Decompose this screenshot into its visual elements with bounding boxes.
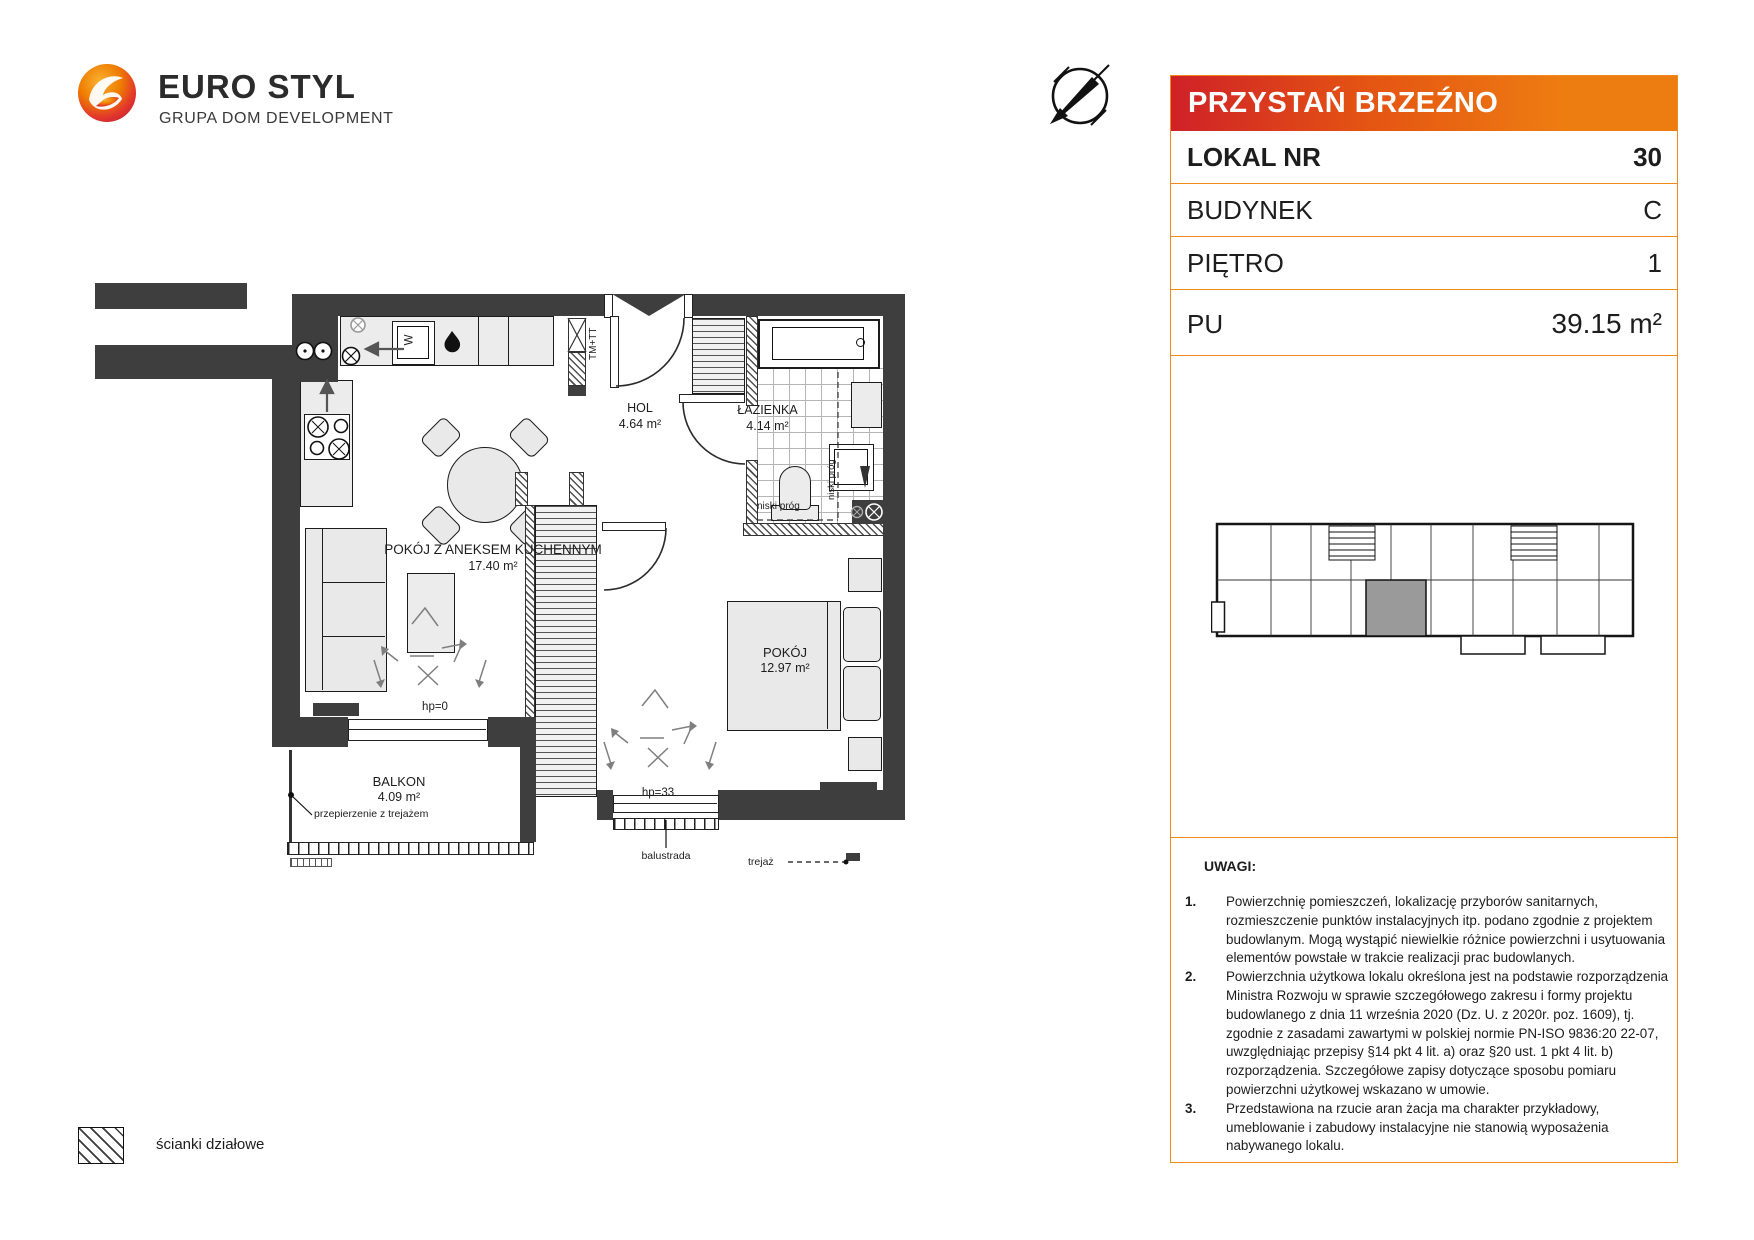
trellis-anchor (846, 853, 860, 861)
table-row-pu: PU 39.15 m² (1171, 289, 1677, 358)
note-item-2: 2. Powierzchnia użytkowa lokalu określon… (1171, 968, 1677, 1100)
room-label-hall: HOL 4.64 m² (600, 401, 680, 432)
floor-plan-card: { "logo": { "name": "EURO STYL", "taglin… (0, 0, 1754, 1240)
project-title: PRZYSTAŃ BRZEŹNO (1188, 87, 1498, 120)
annotation-trellis: trejaż (748, 856, 774, 868)
wall (883, 316, 905, 820)
radiator (313, 703, 359, 716)
hall-closet (692, 318, 745, 394)
room-name: ŁAZIENKA (715, 403, 820, 419)
logo-name: EURO STYL (158, 68, 356, 106)
note-item-1: 1. Powierzchnię pomieszczeń, lokalizację… (1171, 893, 1677, 968)
partition-wall (743, 523, 890, 536)
dining-table (447, 447, 523, 523)
counter-divider (478, 316, 479, 366)
note-number: 2. (1185, 968, 1196, 987)
partition-wall (569, 472, 584, 506)
shaft-block (852, 500, 890, 524)
room-name: POKÓJ Z ANEKSEM KUCHENNYM (368, 542, 618, 559)
room-area: 17.40 m² (368, 559, 618, 575)
annotation-hp33: hp=33 (628, 787, 688, 799)
entrance-marker (612, 294, 686, 316)
annotation-partition-trellis: przepierzenie z trejażem (314, 808, 428, 820)
note-number: 3. (1185, 1100, 1196, 1119)
legend-hatch-sample (78, 1127, 124, 1164)
partition-wall (746, 460, 758, 524)
row-label: LOKAL NR (1187, 142, 1321, 173)
eurostyl-logo-icon (76, 62, 138, 124)
entrance-door-leaf (610, 316, 619, 388)
radiator (820, 782, 877, 793)
wall (488, 717, 536, 747)
row-value: 30 (1633, 142, 1662, 173)
table-row-budynek: BUDYNEK C (1171, 183, 1677, 236)
table-row-pietro: PIĘTRO 1 (1171, 236, 1677, 289)
note-text: Powierzchnia użytkowa lokalu określona j… (1226, 969, 1668, 1097)
wall (686, 294, 905, 316)
nightstand (848, 737, 882, 771)
room-name: POKÓJ (733, 645, 837, 661)
building-overview-plan (1211, 514, 1641, 669)
row-value: 1 (1648, 248, 1662, 279)
row-label: PU (1187, 309, 1223, 340)
door-jamb (684, 294, 693, 318)
row-value: C (1643, 195, 1662, 226)
wall (95, 283, 247, 309)
compass-icon (1042, 58, 1118, 134)
trellis-ticks (290, 858, 332, 867)
interior-door-leaf (679, 394, 745, 403)
room-label-bathroom: ŁAZIENKA 4.14 m² (715, 403, 820, 434)
highlighted-unit (1366, 580, 1426, 636)
dining-chair (419, 416, 462, 459)
room-area: 12.97 m² (733, 661, 837, 677)
balcony-side-wall (289, 750, 292, 842)
partition-wall (746, 316, 758, 406)
room-label-bedroom: POKÓJ 12.97 m² (733, 645, 837, 677)
kitchen-counter-top (340, 316, 554, 366)
wall (568, 386, 586, 396)
room-area: 4.09 m² (349, 790, 449, 806)
annotation-low-threshold-vertical: niski próg (826, 436, 837, 500)
logo-tagline: GRUPA DOM DEVELOPMENT (159, 110, 394, 128)
door-jamb (604, 294, 613, 318)
dimension-mark (604, 690, 716, 770)
table-row-lokal: LOKAL NR 30 (1171, 131, 1677, 183)
wall (597, 790, 613, 820)
row-label: PIĘTRO (1187, 248, 1284, 279)
annotation-shaft: TM+TT (588, 314, 599, 360)
washer-letter: W (403, 335, 415, 346)
room-name: BALKON (349, 774, 449, 790)
wall (272, 717, 348, 747)
note-number: 1. (1185, 893, 1196, 912)
annotation-hp0: hp=0 (405, 701, 465, 713)
shaft-box (568, 318, 586, 352)
wall (718, 790, 905, 820)
annotation-balustrade: balustrada (621, 850, 711, 862)
counter-divider (508, 316, 509, 366)
notes-box: UWAGI: 1. Powierzchnię pomieszczeń, loka… (1170, 837, 1678, 1163)
note-text: Przedstawiona na rzucie aran żacja ma ch… (1226, 1101, 1609, 1154)
row-value: 39.15 m² (1552, 308, 1663, 340)
wall (520, 747, 536, 842)
legend-label: ścianki działowe (156, 1136, 264, 1153)
note-item-3: 3. Przedstawiona na rzucie aran żacja ma… (1171, 1100, 1677, 1156)
pillow (843, 666, 881, 721)
annotation-low-threshold: niski próg (757, 501, 800, 512)
note-text: Powierzchnię pomieszczeń, lokalizację pr… (1226, 894, 1665, 965)
bathroom-sink (851, 382, 882, 428)
bathtub (758, 319, 880, 369)
room-label-living: POKÓJ Z ANEKSEM KUCHENNYM 17.40 m² (368, 542, 618, 575)
nightstand (848, 558, 882, 592)
partition-wall (568, 352, 586, 386)
room-area: 4.64 m² (600, 417, 680, 433)
wall (95, 345, 292, 379)
balcony-balustrade (287, 842, 534, 855)
project-title-bar: PRZYSTAŃ BRZEŹNO (1171, 76, 1677, 131)
building-overview-box (1170, 355, 1678, 838)
unit-info-table: PRZYSTAŃ BRZEŹNO LOKAL NR 30 BUDYNEK C P… (1170, 75, 1678, 356)
room-name: HOL (600, 401, 680, 417)
wall (330, 294, 612, 316)
bedroom-door-leaf (602, 522, 666, 531)
notes-title: UWAGI: (1204, 858, 1256, 874)
coffee-table (407, 573, 455, 653)
living-room-window (348, 719, 488, 741)
logo: EURO STYL GRUPA DOM DEVELOPMENT (76, 60, 396, 140)
stove (304, 414, 350, 460)
bedroom-balustrade (613, 818, 719, 830)
wall (272, 379, 300, 717)
row-label: BUDYNEK (1187, 195, 1313, 226)
room-area: 4.14 m² (715, 419, 820, 435)
pillow (843, 607, 881, 662)
dining-chair (507, 416, 550, 459)
room-label-balcony: BALKON 4.09 m² (349, 774, 449, 806)
partition-wall (515, 472, 528, 506)
